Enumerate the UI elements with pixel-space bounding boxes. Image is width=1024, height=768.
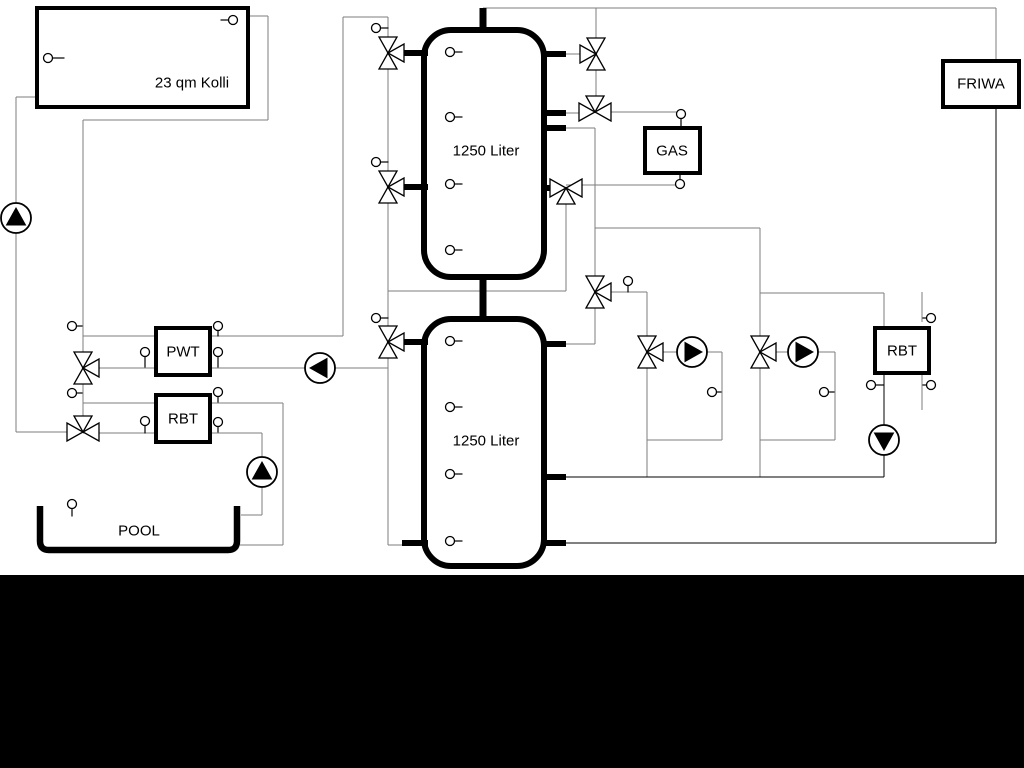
pump <box>788 337 818 367</box>
rbt-right-box-label: RBT <box>887 343 917 360</box>
sensor-bulb <box>446 246 455 255</box>
letterbox-band <box>0 575 1024 768</box>
sensor-bulb <box>68 322 77 331</box>
sensor-bulb <box>676 180 685 189</box>
sensor-bulb <box>446 537 455 546</box>
sensor-bulb <box>141 348 150 357</box>
sensor-bulb <box>68 389 77 398</box>
sensor-bulb <box>229 16 238 25</box>
sensor-bulb <box>446 337 455 346</box>
buffer-tank-top-label: 1250 Liter <box>453 143 520 160</box>
sensor-bulb <box>446 48 455 57</box>
collector-box: 23 qm Kolli <box>37 8 248 107</box>
friwa-box: FRIWA <box>943 61 1019 107</box>
sensor-bulb <box>372 314 381 323</box>
sensor-bulb <box>214 418 223 427</box>
sensor-bulb <box>141 417 150 426</box>
pump <box>305 353 335 383</box>
pool-label: POOL <box>118 523 160 540</box>
buffer-tank-top: 1250 Liter <box>424 30 544 277</box>
sensor-bulb <box>68 500 77 509</box>
sensor-bulb <box>214 348 223 357</box>
schematic-canvas: 23 qm KolliPWTRBTGASFRIWARBT1250 Liter12… <box>0 0 1024 768</box>
gas-box: GAS <box>645 128 700 173</box>
sensor-bulb <box>927 314 936 323</box>
sensor-bulb <box>820 388 829 397</box>
sensor-bulb <box>214 322 223 331</box>
sensor-bulb <box>624 277 633 286</box>
collector-box-outline <box>37 8 248 107</box>
pump <box>1 203 31 233</box>
sensor-bulb <box>372 24 381 33</box>
sensor-bulb <box>372 158 381 167</box>
gas-box-label: GAS <box>656 143 688 160</box>
sensor-bulb <box>708 388 717 397</box>
rbt-right-box: RBT <box>875 328 929 373</box>
diagram-page: 23 qm KolliPWTRBTGASFRIWARBT1250 Liter12… <box>0 0 1024 768</box>
sensor-bulb <box>446 113 455 122</box>
buffer-tank-bottom: 1250 Liter <box>424 319 544 566</box>
pump <box>677 337 707 367</box>
pwt-box: PWT <box>156 328 210 375</box>
pwt-box-label: PWT <box>166 344 199 361</box>
rbt-left-box-label: RBT <box>168 411 198 428</box>
sensor-bulb <box>446 470 455 479</box>
buffer-tank-bottom-label: 1250 Liter <box>453 433 520 450</box>
sensor-bulb <box>677 110 686 119</box>
sensor-bulb <box>446 180 455 189</box>
pump <box>869 425 899 455</box>
collector-box-label: 23 qm Kolli <box>155 75 229 92</box>
sensor-bulb <box>446 403 455 412</box>
rbt-left-box: RBT <box>156 395 210 442</box>
sensor-bulb <box>44 54 53 63</box>
sensor-bulb <box>867 381 876 390</box>
friwa-box-label: FRIWA <box>957 76 1005 93</box>
sensor-bulb <box>214 388 223 397</box>
sensor-bulb <box>927 381 936 390</box>
pump <box>247 457 277 487</box>
